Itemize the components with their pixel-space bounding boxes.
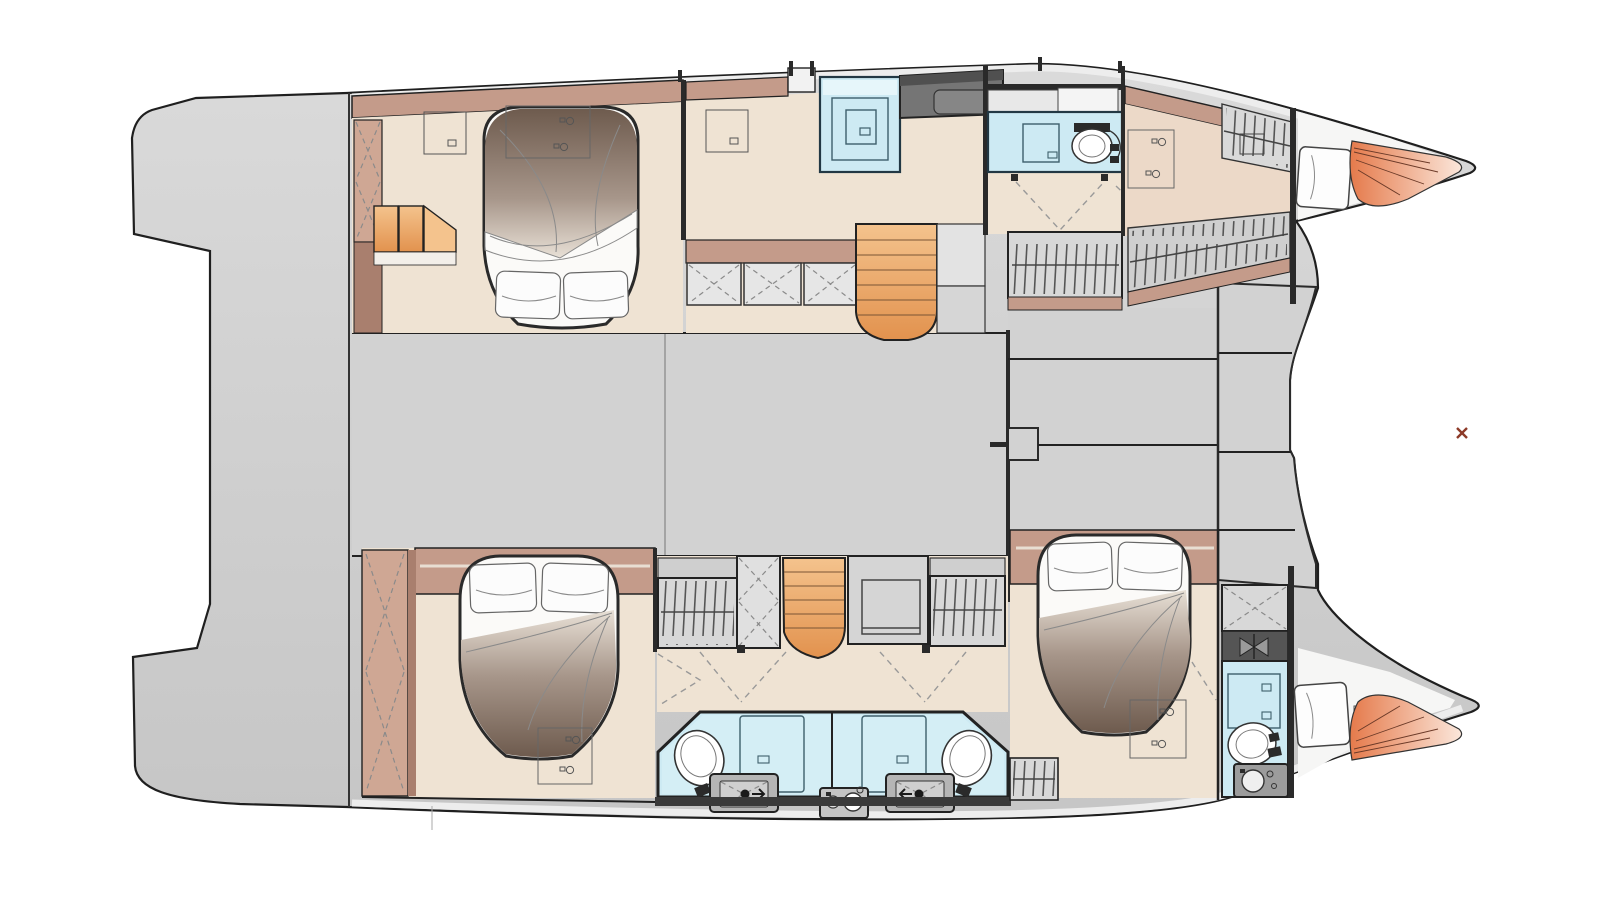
stanchion: [789, 61, 793, 76]
vanity-right: [886, 774, 954, 812]
starboard-passage-floor: [1008, 308, 1218, 556]
stanchion: [1038, 57, 1042, 71]
hanging-locker-box: [1008, 232, 1122, 310]
double-bed-aft-top: [484, 107, 638, 328]
twin-bathrooms: [655, 712, 1011, 818]
valve-shelf: [1222, 631, 1288, 661]
berth-spinnaker-cone: [1350, 141, 1462, 206]
top-hull: [352, 57, 1462, 340]
staircase-bottom-hull: [783, 558, 845, 658]
vanity-desk: [848, 556, 928, 644]
mirror-cabinet: [1222, 585, 1288, 631]
crash-bulkhead: [1290, 108, 1296, 304]
berth-pillow: [1296, 146, 1352, 209]
mast-post-tab: [990, 442, 1008, 447]
vanity-top: [988, 90, 1058, 112]
forward-cabin-top: [1125, 86, 1292, 306]
vanity-left: [710, 774, 778, 812]
catamaran-floor-plan: [0, 0, 1600, 900]
aft-cabin-top: [352, 80, 683, 333]
compass-marker: [1457, 428, 1467, 438]
forward-bathroom-bottom: [1222, 585, 1288, 797]
crash-bulkhead: [1288, 566, 1294, 798]
hull-inner-wall: [655, 797, 1011, 806]
double-bed-forward-bottom: [1038, 535, 1190, 735]
cabin-bulkhead: [681, 80, 686, 240]
wardrobe-mirror: [362, 550, 408, 796]
mast-post: [1008, 428, 1038, 460]
staircase-top-hull: [856, 224, 937, 340]
cistern-shelf: [1058, 88, 1118, 112]
hanging-locker-A: [658, 578, 737, 648]
wardrobe-divider: [408, 550, 416, 796]
forward-cabin-bottom: [1010, 530, 1218, 800]
midship-bottom: [657, 556, 1008, 712]
mirror-cabinet: [737, 556, 780, 648]
double-bed-aft-bottom: [460, 556, 618, 759]
stanchion: [678, 70, 682, 82]
berth-pillow: [1294, 682, 1350, 747]
shower-cubicle-top: [820, 77, 900, 172]
hanging-locker-B: [930, 576, 1005, 646]
aft-cabin-bottom: [362, 548, 655, 802]
saloon-floor: [352, 333, 1008, 556]
locker-top: [658, 558, 737, 578]
foredeck-steps: [1218, 283, 1316, 588]
bench-seat: [686, 240, 858, 305]
locker-top: [930, 558, 1005, 576]
hanging-locker-C: [1010, 758, 1058, 800]
cabin-bulkhead: [653, 548, 657, 652]
stanchion: [810, 61, 814, 76]
stair-side-panel: [937, 224, 985, 286]
stair-side-panel-low: [937, 286, 985, 333]
sink-unit: [1234, 764, 1288, 797]
floor-plan-svg: [0, 0, 1600, 900]
